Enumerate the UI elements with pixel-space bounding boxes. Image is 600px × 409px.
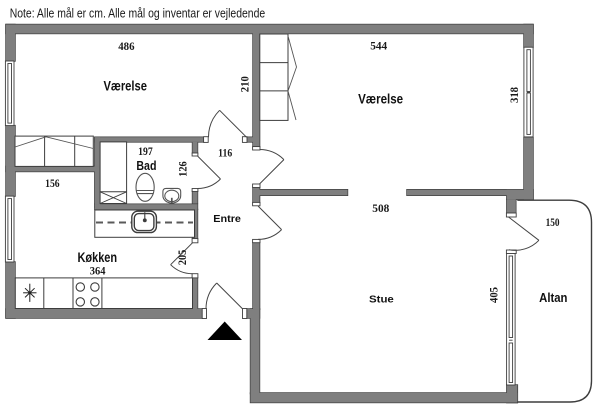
svg-text:197: 197 bbox=[138, 146, 153, 158]
svg-text:405: 405 bbox=[488, 287, 500, 303]
svg-text:364: 364 bbox=[90, 265, 106, 277]
svg-text:Entre: Entre bbox=[213, 213, 241, 225]
svg-text:544: 544 bbox=[370, 41, 387, 53]
svg-text:318: 318 bbox=[509, 87, 521, 103]
svg-text:508: 508 bbox=[372, 203, 389, 215]
svg-text:Værelse: Værelse bbox=[358, 90, 403, 106]
svg-text:Køkken: Køkken bbox=[77, 249, 117, 265]
svg-text:486: 486 bbox=[118, 41, 135, 53]
svg-text:205: 205 bbox=[177, 249, 189, 265]
svg-text:116: 116 bbox=[218, 148, 232, 160]
svg-text:150: 150 bbox=[546, 217, 560, 229]
svg-text:210: 210 bbox=[240, 76, 252, 92]
svg-text:Altan: Altan bbox=[539, 290, 567, 305]
svg-text:Stue: Stue bbox=[369, 293, 394, 305]
svg-text:Note: Alle mål er cm. Alle mål: Note: Alle mål er cm. Alle mål og invent… bbox=[10, 5, 266, 20]
svg-text:126: 126 bbox=[177, 161, 189, 177]
svg-text:Værelse: Værelse bbox=[103, 78, 147, 94]
svg-text:Bad: Bad bbox=[136, 159, 156, 173]
svg-text:156: 156 bbox=[45, 178, 60, 190]
